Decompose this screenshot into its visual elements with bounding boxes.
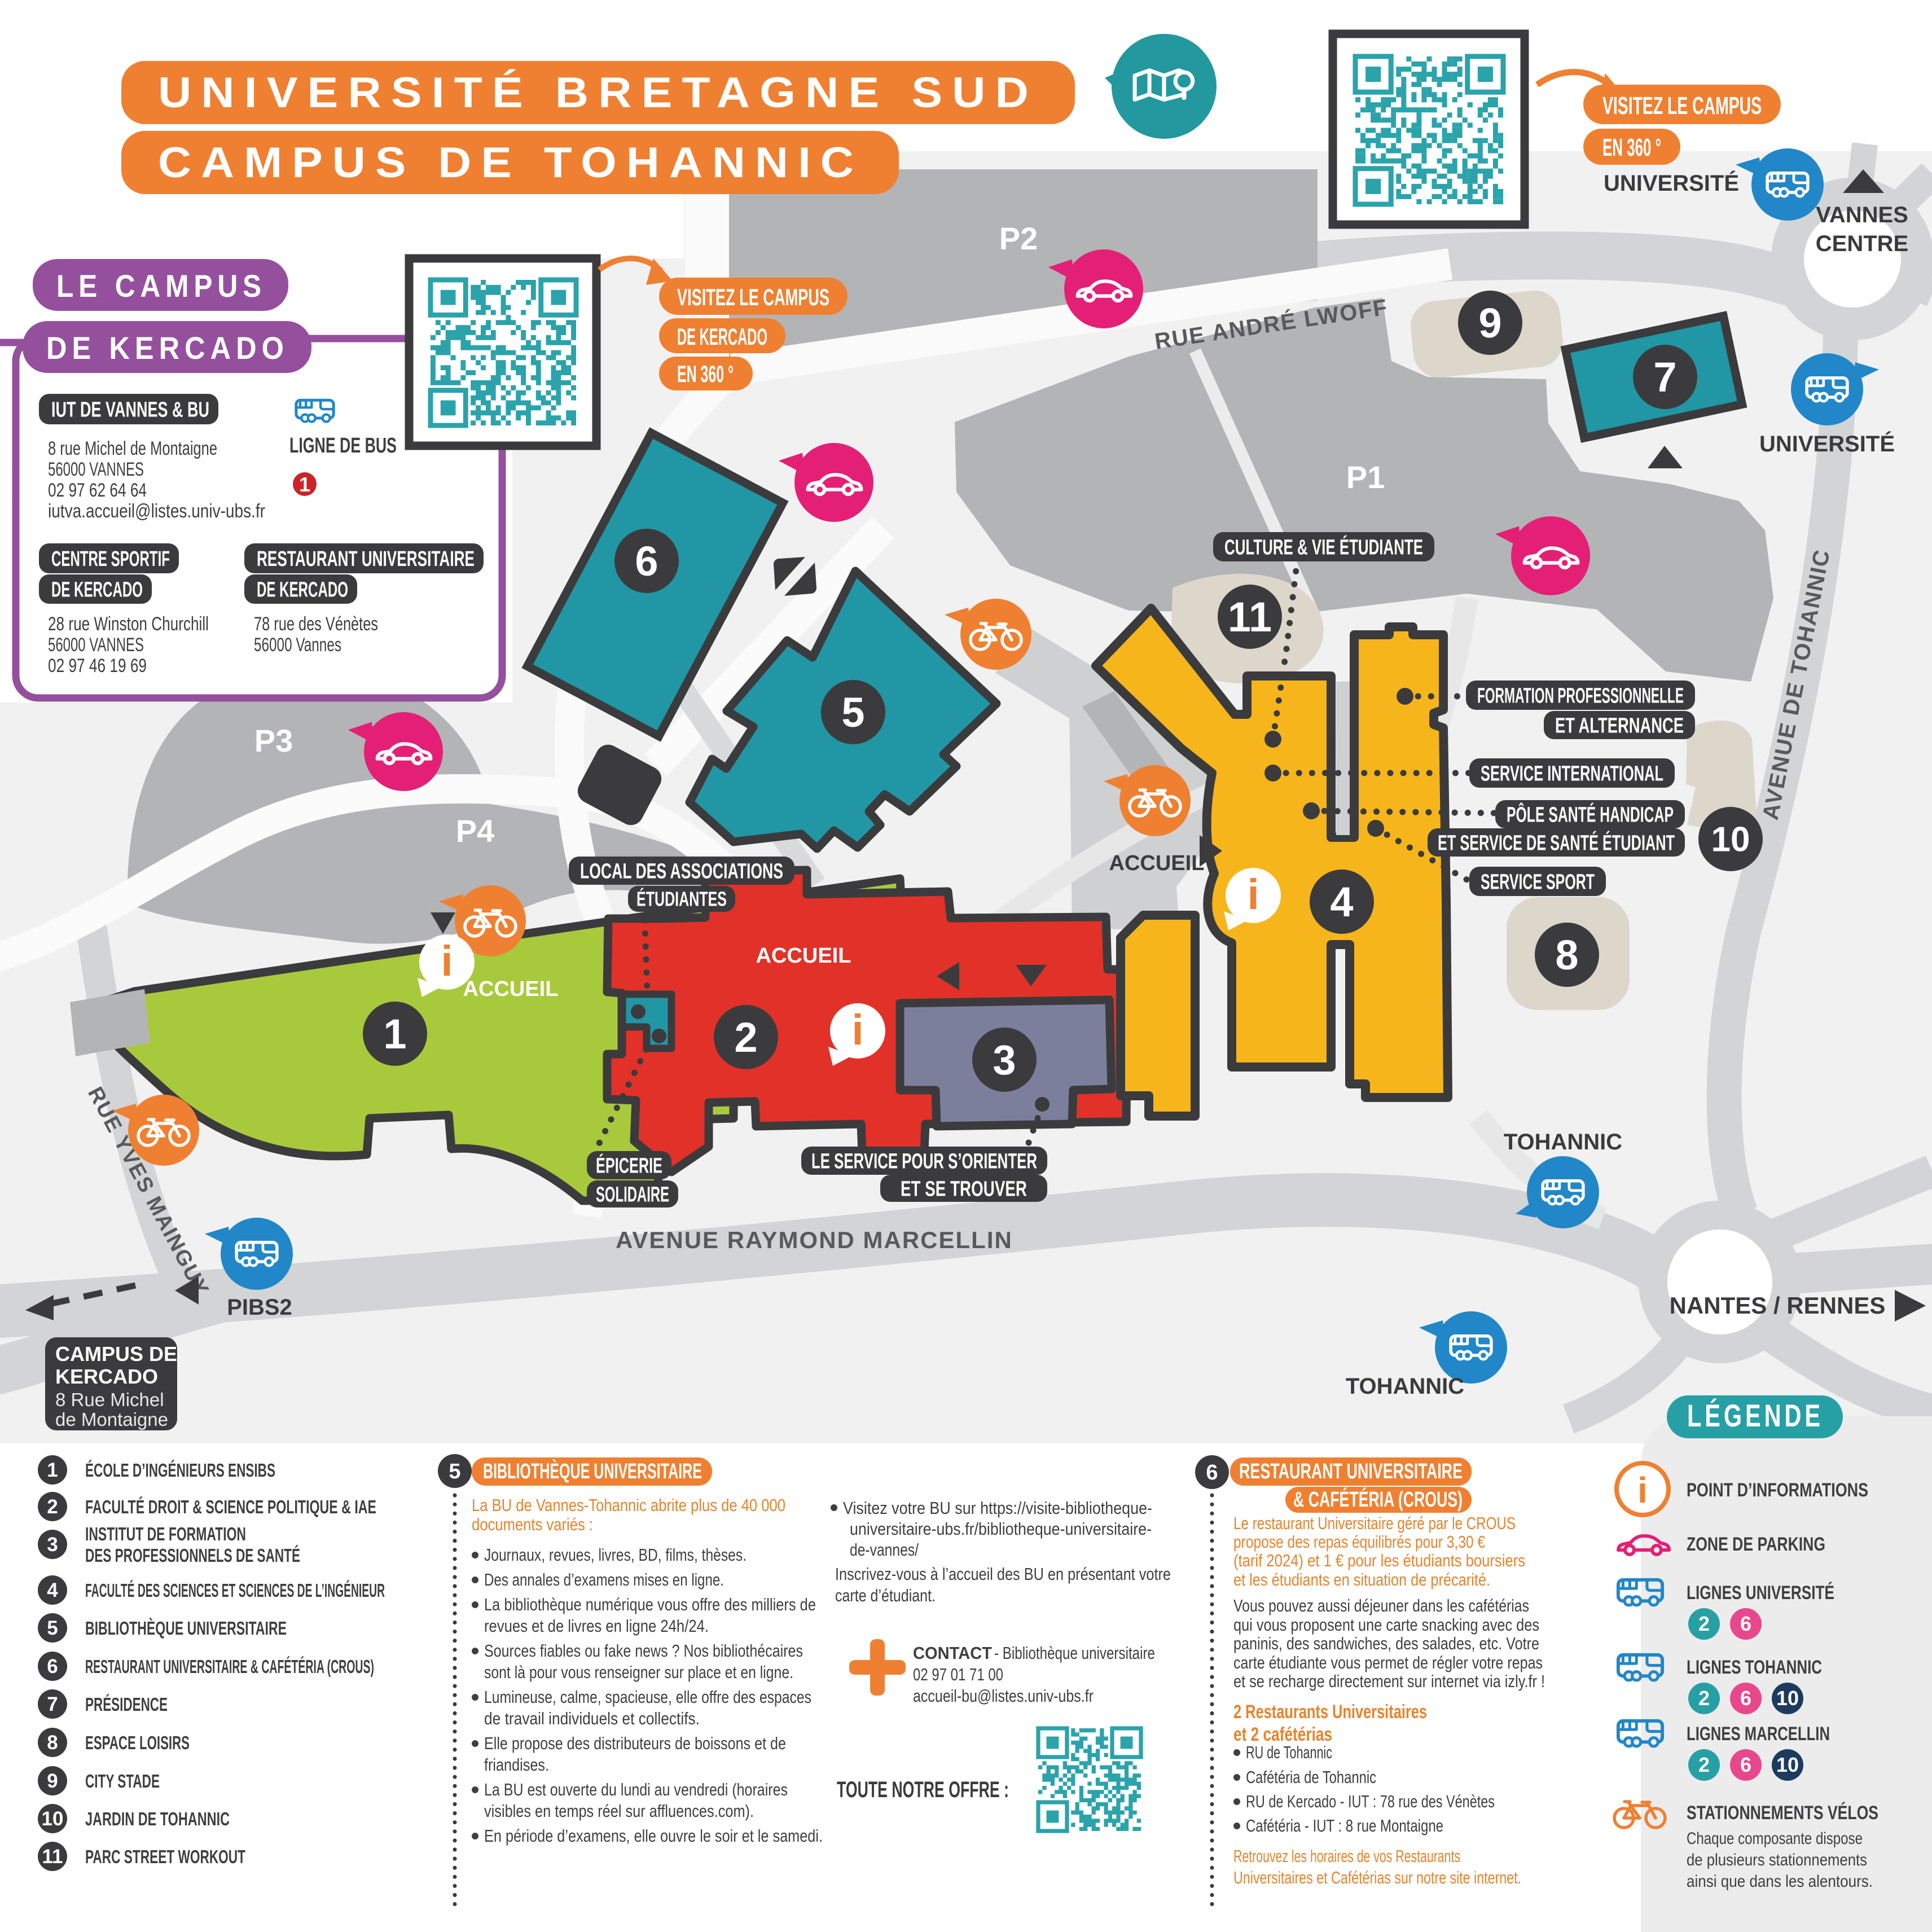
svg-text:56000 VANNES: 56000 VANNES xyxy=(48,634,144,656)
svg-text:Visitez votre BU sur https://v: Visitez votre BU sur https://visite-bibl… xyxy=(843,1498,1152,1518)
svg-text:8 rue Michel de Montaigne: 8 rue Michel de Montaigne xyxy=(48,438,217,459)
svg-text:8: 8 xyxy=(1555,932,1578,978)
svg-text:CENTRE SPORTIF: CENTRE SPORTIF xyxy=(51,547,170,571)
svg-text:Journaux, revues, livres, BD,: Journaux, revues, livres, BD, films, thè… xyxy=(484,1545,747,1565)
svg-text:Vous pouvez aussi déjeuner da: Vous pouvez aussi déjeuner dans les café… xyxy=(1233,1596,1529,1615)
svg-text:10: 10 xyxy=(1776,1753,1799,1776)
svg-text:CITY STADE: CITY STADE xyxy=(85,1771,160,1792)
svg-text:2: 2 xyxy=(734,1014,757,1061)
svg-text:Des annales d’examens mises en: Des annales d’examens mises en ligne. xyxy=(484,1570,724,1589)
svg-text:Retrouvez les horaires de vos: Retrouvez les horaires de vos Restaurant… xyxy=(1233,1846,1460,1866)
svg-text:RESTAURANT UNIVERSITAIRE: RESTAURANT UNIVERSITAIRE xyxy=(257,547,475,571)
svg-text:friandises.: friandises. xyxy=(484,1755,549,1775)
svg-text:6: 6 xyxy=(47,1656,58,1678)
svg-text:6: 6 xyxy=(1740,1612,1751,1635)
svg-text:Le restaurant Universitaire gé: Le restaurant Universitaire géré par le … xyxy=(1233,1513,1516,1533)
svg-text:VISITEZ LE CAMPUS: VISITEZ LE CAMPUS xyxy=(1602,92,1762,120)
svg-text:LE CAMPUS: LE CAMPUS xyxy=(56,268,266,304)
svg-text:ÉTUDIANTES: ÉTUDIANTES xyxy=(636,888,727,911)
svg-text:5: 5 xyxy=(841,689,864,736)
svg-text:de plusieurs stationnements: de plusieurs stationnements xyxy=(1687,1851,1867,1869)
svg-text:sont là pour vous renseigner s: sont là pour vous renseigner sur place e… xyxy=(484,1662,793,1682)
svg-text:La BU est ouverte du lundi au: La BU est ouverte du lundi au vendredi (… xyxy=(484,1780,788,1799)
svg-text:56000 VANNES: 56000 VANNES xyxy=(48,459,144,480)
svg-text:P3: P3 xyxy=(254,723,293,758)
svg-text:LIGNES MARCELLIN: LIGNES MARCELLIN xyxy=(1687,1723,1830,1745)
svg-text:& CAFÉTÉRIA (CROUS): & CAFÉTÉRIA (CROUS) xyxy=(1293,1487,1463,1512)
svg-text:(tarif 2024) et 1 € pour les é: (tarif 2024) et 1 € pour les étudiants b… xyxy=(1233,1551,1525,1570)
svg-text:ESPACE LOISIRS: ESPACE LOISIRS xyxy=(85,1732,190,1753)
svg-text:CENTRE: CENTRE xyxy=(1816,231,1908,256)
svg-text:DE KERCADO: DE KERCADO xyxy=(46,330,289,366)
svg-text:1: 1 xyxy=(383,1011,406,1057)
svg-text:UNIVERSITÉ BRETAGNE SUD: UNIVERSITÉ BRETAGNE SUD xyxy=(158,69,1038,117)
svg-text:UNIVERSITÉ: UNIVERSITÉ xyxy=(1759,431,1895,456)
svg-text:TOHANNIC: TOHANNIC xyxy=(1346,1374,1464,1399)
svg-text:CULTURE & VIE ÉTUDIANTE: CULTURE & VIE ÉTUDIANTE xyxy=(1224,534,1423,559)
svg-text:SERVICE SPORT: SERVICE SPORT xyxy=(1481,870,1595,894)
svg-text:LE SERVICE POUR S’ORIENTER: LE SERVICE POUR S’ORIENTER xyxy=(811,1149,1037,1173)
svg-text:P2: P2 xyxy=(999,221,1038,256)
svg-text:02 97 46 19 69: 02 97 46 19 69 xyxy=(48,655,147,677)
svg-text:10: 10 xyxy=(1711,820,1750,859)
svg-text:1: 1 xyxy=(47,1459,58,1481)
svg-text:3: 3 xyxy=(47,1534,58,1556)
svg-text:de-vannes/: de-vannes/ xyxy=(850,1540,919,1560)
svg-text:propose des repas équilibrés p: propose des repas équilibrés pour 3,30 € xyxy=(1233,1532,1485,1552)
svg-text:PRÉSIDENCE: PRÉSIDENCE xyxy=(85,1694,168,1715)
svg-text:BIBLIOTHÈQUE UNIVERSITAIRE: BIBLIOTHÈQUE UNIVERSITAIRE xyxy=(483,1459,702,1483)
svg-text:et les étudiants en situation: et les étudiants en situation de précari… xyxy=(1233,1570,1490,1589)
svg-text:ET SERVICE DE SANTÉ ÉTUDIANT: ET SERVICE DE SANTÉ ÉTUDIANT xyxy=(1438,830,1675,855)
svg-text:En période d’examens, elle ouv: En période d’examens, elle ouvre le soir… xyxy=(484,1826,823,1846)
svg-text:ZONE DE PARKING: ZONE DE PARKING xyxy=(1687,1534,1825,1555)
svg-text:5: 5 xyxy=(47,1617,58,1639)
svg-text:POINT D’INFORMATIONS: POINT D’INFORMATIONS xyxy=(1687,1479,1868,1501)
svg-text:56000 Vannes: 56000 Vannes xyxy=(254,634,341,656)
svg-text:documents variés :: documents variés : xyxy=(472,1514,593,1534)
svg-text:La bibliothèque numérique vous: La bibliothèque numérique vous offre des… xyxy=(484,1595,816,1614)
svg-text:La BU de Vannes-Tohannic abrit: La BU de Vannes-Tohannic abrite plus de … xyxy=(472,1495,785,1515)
svg-text:6: 6 xyxy=(635,538,658,585)
svg-text:RU de Tohannic: RU de Tohannic xyxy=(1246,1742,1332,1762)
svg-text:paninis, des sandwiches, des s: paninis, des sandwiches, des salades, et… xyxy=(1233,1634,1539,1653)
svg-text:2: 2 xyxy=(1698,1753,1710,1776)
svg-text:ainsi que dans les alentours.: ainsi que dans les alentours. xyxy=(1687,1872,1873,1891)
svg-text:Chaque composante dispose: Chaque composante dispose xyxy=(1687,1829,1863,1848)
svg-text:10: 10 xyxy=(42,1808,64,1830)
svg-text:10: 10 xyxy=(1776,1687,1799,1710)
svg-text:02 97 01 71 00: 02 97 01 71 00 xyxy=(913,1665,1003,1684)
svg-text:DE KERCADO: DE KERCADO xyxy=(257,578,348,601)
svg-text:et se recharge directement sur: et se recharge directement sur internet … xyxy=(1233,1671,1545,1691)
svg-text:LOCAL DES ASSOCIATIONS: LOCAL DES ASSOCIATIONS xyxy=(580,859,783,883)
svg-text:Cafétéria de Tohannic: Cafétéria de Tohannic xyxy=(1246,1767,1376,1787)
svg-text:11: 11 xyxy=(1228,594,1272,640)
svg-text:ÉPICERIE: ÉPICERIE xyxy=(596,1153,662,1178)
svg-text:8: 8 xyxy=(47,1732,58,1754)
svg-text:VANNES: VANNES xyxy=(1816,203,1908,227)
svg-text:7: 7 xyxy=(1653,354,1676,401)
svg-text:TOHANNIC: TOHANNIC xyxy=(1504,1130,1622,1154)
svg-text:Cafétéria - IUT : 8 rue Montai: Cafétéria - IUT : 8 rue Montaigne xyxy=(1246,1816,1443,1836)
svg-text:2: 2 xyxy=(1698,1612,1710,1635)
svg-text:LÉGENDE: LÉGENDE xyxy=(1687,1398,1824,1433)
svg-text:RESTAURANT UNIVERSITAIRE: RESTAURANT UNIVERSITAIRE xyxy=(1239,1460,1463,1483)
svg-text:i: i xyxy=(441,937,453,985)
svg-text:EN 360 °: EN 360 ° xyxy=(677,361,734,387)
svg-text:FACULTÉ DES SCIENCES ET SCIENC: FACULTÉ DES SCIENCES ET SCIENCES DE L’IN… xyxy=(85,1580,385,1601)
svg-text:PIBS2: PIBS2 xyxy=(227,1295,292,1320)
svg-text:qui vous proposent une carte s: qui vous proposent une carte snacking av… xyxy=(1233,1615,1539,1635)
svg-text:accueil-bu@listes.univ-ubs.fr: accueil-bu@listes.univ-ubs.fr xyxy=(913,1686,1094,1706)
svg-text:CAMPUS DE: CAMPUS DE xyxy=(55,1342,177,1365)
svg-text:ET ALTERNANCE: ET ALTERNANCE xyxy=(1555,714,1684,737)
svg-text:carte d’étudiant.: carte d’étudiant. xyxy=(835,1586,936,1605)
svg-text:4: 4 xyxy=(47,1579,58,1601)
svg-text:Elle propose des distributeurs: Elle propose des distributeurs de boisso… xyxy=(484,1733,786,1753)
svg-text:UNIVERSITÉ: UNIVERSITÉ xyxy=(1604,170,1739,196)
svg-text:ACCUEIL: ACCUEIL xyxy=(756,944,851,968)
svg-text:5: 5 xyxy=(449,1460,460,1483)
svg-text:8 Rue Michel: 8 Rue Michel xyxy=(55,1389,164,1410)
svg-text:STATIONNEMENTS VÉLOS: STATIONNEMENTS VÉLOS xyxy=(1687,1802,1878,1824)
svg-text:- Bibliothèque universitaire: - Bibliothèque universitaire xyxy=(994,1643,1155,1663)
svg-text:i: i xyxy=(1637,1470,1648,1511)
svg-text:6: 6 xyxy=(1740,1753,1751,1776)
svg-text:CONTACT: CONTACT xyxy=(913,1643,992,1663)
svg-text:universitaire-ubs.fr/bibliothe: universitaire-ubs.fr/bibliotheque-univer… xyxy=(850,1519,1152,1539)
svg-text:de Montaigne: de Montaigne xyxy=(55,1409,168,1430)
svg-text:4: 4 xyxy=(1330,879,1353,925)
svg-text:Lumineuse, calme, spacieuse, e: Lumineuse, calme, spacieuse, elle offre … xyxy=(484,1687,811,1707)
svg-text:RESTAURANT UNIVERSITAIRE & CAF: RESTAURANT UNIVERSITAIRE & CAFÉTÉRIA (CR… xyxy=(85,1656,374,1677)
svg-text:NANTES / RENNES: NANTES / RENNES xyxy=(1670,1292,1886,1319)
svg-text:3: 3 xyxy=(993,1037,1016,1083)
svg-text:de travail individuels et coll: de travail individuels et collectifs. xyxy=(484,1709,700,1728)
svg-text:2: 2 xyxy=(47,1496,58,1518)
svg-text:DE KERCADO: DE KERCADO xyxy=(51,578,143,601)
svg-text:revues et de livres en ligne 2: revues et de livres en ligne 24h/24. xyxy=(484,1616,709,1636)
svg-text:BIBLIOTHÈQUE UNIVERSITAIRE: BIBLIOTHÈQUE UNIVERSITAIRE xyxy=(85,1618,287,1639)
svg-text:9: 9 xyxy=(1478,300,1501,346)
svg-text:FACULTÉ DROIT & SCIENCE POLITI: FACULTÉ DROIT & SCIENCE POLITIQUE & IAE xyxy=(85,1496,376,1517)
svg-text:CAMPUS DE TOHANNIC: CAMPUS DE TOHANNIC xyxy=(158,139,863,187)
svg-text:6: 6 xyxy=(1206,1461,1218,1485)
svg-text:11: 11 xyxy=(42,1846,63,1868)
svg-text:ET SE TROUVER: ET SE TROUVER xyxy=(901,1177,1027,1201)
svg-text:LIGNE DE BUS: LIGNE DE BUS xyxy=(289,434,397,458)
svg-text:KERCADO: KERCADO xyxy=(55,1365,158,1388)
svg-text:P4: P4 xyxy=(456,813,495,849)
svg-text:9: 9 xyxy=(47,1770,58,1792)
svg-text:P1: P1 xyxy=(1346,459,1385,495)
svg-text:IUT DE VANNES & BU: IUT DE VANNES & BU xyxy=(51,398,209,421)
svg-text:7: 7 xyxy=(47,1693,58,1715)
svg-text:2 Restaurants Universitaires: 2 Restaurants Universitaires xyxy=(1233,1701,1427,1723)
svg-text:INSTITUT DE FORMATION: INSTITUT DE FORMATION xyxy=(85,1523,246,1544)
svg-text:DE KERCADO: DE KERCADO xyxy=(677,323,767,350)
svg-text:LIGNES TOHANNIC: LIGNES TOHANNIC xyxy=(1687,1657,1822,1678)
svg-text:ACCUEIL: ACCUEIL xyxy=(1109,851,1205,875)
svg-text:TOUTE NOTRE OFFRE :: TOUTE NOTRE OFFRE : xyxy=(837,1777,1009,1802)
svg-text:DES PROFESSIONNELS DE SANTÉ: DES PROFESSIONNELS DE SANTÉ xyxy=(85,1545,300,1566)
svg-text:AVENUE RAYMOND MARCELLIN: AVENUE RAYMOND MARCELLIN xyxy=(616,1227,1013,1253)
svg-text:78 rue des Vénètes: 78 rue des Vénètes xyxy=(254,613,378,635)
svg-text:iutva.accueil@listes.univ-ubs.: iutva.accueil@listes.univ-ubs.fr xyxy=(48,500,265,522)
svg-text:FORMATION PROFESSIONNELLE: FORMATION PROFESSIONNELLE xyxy=(1477,684,1684,708)
svg-text:i: i xyxy=(1247,871,1259,919)
svg-text:ACCUEIL: ACCUEIL xyxy=(463,977,559,1001)
svg-text:carte étudiante vous permet de: carte étudiante vous permet de régler vo… xyxy=(1233,1653,1543,1672)
svg-text:JARDIN DE TOHANNIC: JARDIN DE TOHANNIC xyxy=(85,1808,230,1829)
svg-text:Sources fiables ou fake news ?: Sources fiables ou fake news ? Nos bibli… xyxy=(484,1641,803,1661)
svg-text:RU de Kercado - IUT : 78 rue d: RU de Kercado - IUT : 78 rue des Vénètes xyxy=(1246,1792,1495,1811)
svg-text:PÔLE SANTÉ HANDICAP: PÔLE SANTÉ HANDICAP xyxy=(1507,801,1674,827)
svg-text:LIGNES UNIVERSITÉ: LIGNES UNIVERSITÉ xyxy=(1687,1582,1834,1604)
svg-text:02 97 62 64 64: 02 97 62 64 64 xyxy=(48,480,147,501)
svg-text:6: 6 xyxy=(1740,1687,1751,1710)
svg-text:1: 1 xyxy=(299,473,310,496)
svg-text:EN 360 °: EN 360 ° xyxy=(1602,134,1661,161)
svg-text:28 rue Winston Churchill: 28 rue Winston Churchill xyxy=(48,613,209,635)
svg-text:ÉCOLE D’INGÉNIEURS ENSIBS: ÉCOLE D’INGÉNIEURS ENSIBS xyxy=(85,1460,275,1481)
svg-text:i: i xyxy=(851,1006,863,1054)
svg-text:Universitaires et Cafétérias s: Universitaires et Cafétérias sur notre s… xyxy=(1233,1868,1521,1887)
svg-text:visibles en temps réel sur aff: visibles en temps réel sur affluences.co… xyxy=(484,1801,754,1821)
svg-text:SOLIDAIRE: SOLIDAIRE xyxy=(596,1183,669,1206)
svg-text:2: 2 xyxy=(1698,1687,1710,1710)
svg-text:Inscrivez-vous à l’accueil des: Inscrivez-vous à l’accueil des BU en pré… xyxy=(835,1564,1171,1584)
svg-text:VISITEZ LE CAMPUS: VISITEZ LE CAMPUS xyxy=(677,284,829,310)
svg-text:SERVICE INTERNATIONAL: SERVICE INTERNATIONAL xyxy=(1481,762,1663,785)
svg-text:PARC STREET WORKOUT: PARC STREET WORKOUT xyxy=(85,1846,245,1867)
